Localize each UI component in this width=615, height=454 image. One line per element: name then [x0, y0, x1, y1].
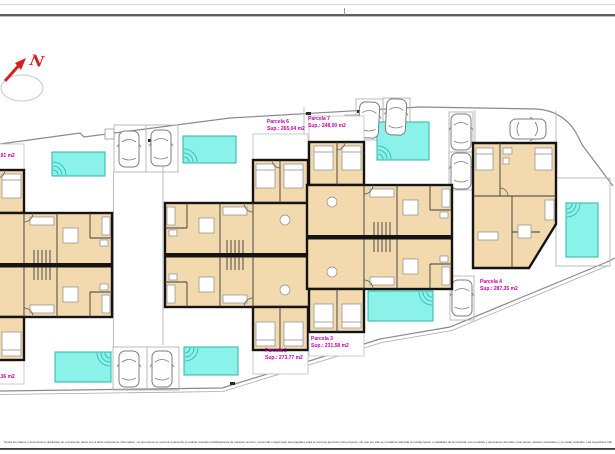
- pool-parcela-1: [55, 352, 111, 382]
- parcel-area: Sup.: 265,04 m2: [267, 126, 305, 133]
- parcel-name: Parcela 6: [267, 119, 305, 126]
- building-parcelas-5-1: [0, 144, 112, 384]
- pool-parcela-4: [566, 203, 598, 257]
- parcel-name: Parcela 7: [308, 116, 346, 123]
- parcel-label-parcela-7: Parcela 7 Sup.: 248,00 m2: [308, 116, 346, 130]
- parcel-area: Sup.: 273,77 m2: [265, 355, 303, 362]
- parcel-name: Parcela 1: [0, 367, 15, 374]
- frame-bottom-line: [0, 448, 615, 450]
- frame-top-dark-line: [0, 14, 615, 16]
- parcel-name: Parcela 4: [480, 279, 518, 286]
- building-parcelas-6-2: [165, 134, 310, 374]
- building-parcela-4: [473, 143, 556, 268]
- parcel-label-parcela-4: Parcela 4 Sup.: 287,35 m2: [480, 279, 518, 293]
- site-plan-canvas: [0, 0, 615, 454]
- parcel-name: Parcela 2: [265, 348, 303, 355]
- parcel-area: Sup.: 287,35 m2: [480, 286, 518, 293]
- pool-parcela-2: [184, 347, 238, 375]
- parcel-label-parcela-1: Parcela 1 Sup.: 302,36 m2: [0, 367, 15, 381]
- parcel-area: Sup.: 302,36 m2: [0, 374, 15, 381]
- parcel-label-parcela-3: Parcela 3 Sup.: 231,58 m2: [311, 336, 349, 350]
- site-plan-sheet: Parcela 1 Sup.: 302,36 m2 Parcela 2 Sup.…: [0, 0, 615, 454]
- parcel-name: Parcela 5: [0, 146, 15, 153]
- frame-top-light-line: [0, 4, 615, 5]
- parcel-label-parcela-2: Parcela 2 Sup.: 273,77 m2: [265, 348, 303, 362]
- parcel-area: Sup.: 248,00 m2: [308, 123, 346, 130]
- parcel-label-parcela-6: Parcela 6 Sup.: 265,04 m2: [267, 119, 305, 133]
- north-label: N: [29, 51, 46, 71]
- parcel-area: Sup.: 231,58 m2: [311, 343, 349, 350]
- frame-top-tick: [344, 8, 345, 15]
- parcel-area: Sup.: 281,91 m2: [0, 153, 15, 160]
- parcel-label-parcela-5: Parcela 5 Sup.: 281,91 m2: [0, 146, 15, 160]
- pool-parcela-6: [183, 136, 236, 163]
- parcel-name: Parcela 3: [311, 336, 349, 343]
- sheet-disclaimer-text: Todos los planos y dimensiones ilustrado…: [4, 440, 612, 444]
